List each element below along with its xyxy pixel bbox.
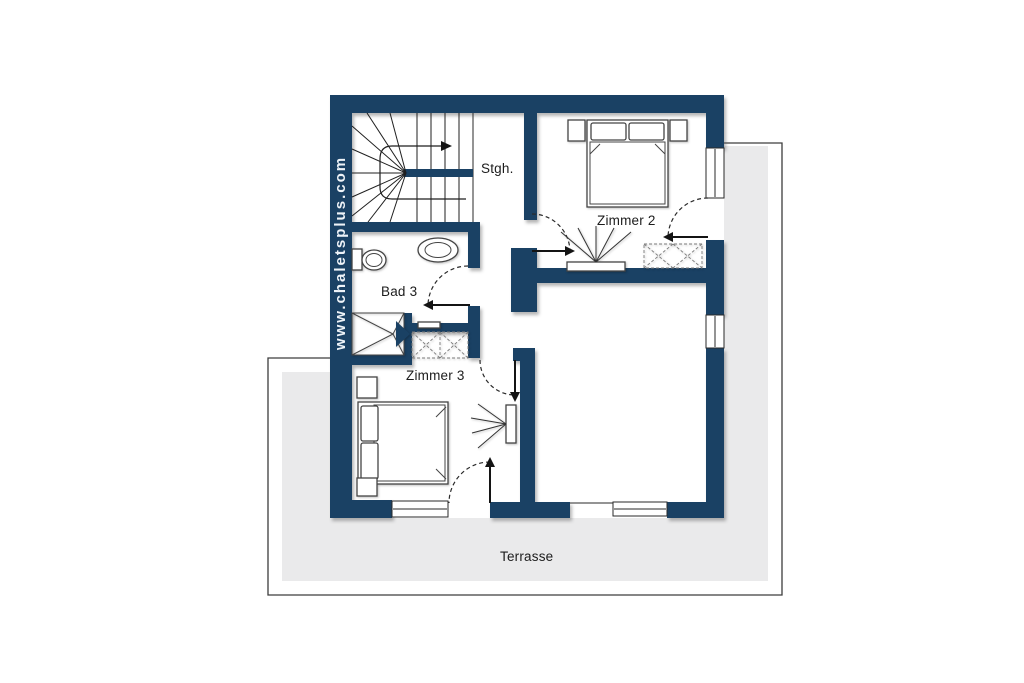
floorplan-drawing bbox=[0, 0, 1024, 683]
wall-hall-upper bbox=[524, 113, 537, 220]
bed-zimmer3-pillow-bottom bbox=[361, 443, 378, 479]
wall-right-lower bbox=[706, 348, 724, 518]
wall-right-middle bbox=[706, 240, 724, 315]
label-zimmer2: Zimmer 2 bbox=[597, 213, 656, 228]
wall-stairs-bottom bbox=[352, 222, 473, 232]
wall-hall-notch bbox=[513, 348, 535, 361]
wall-shower-south bbox=[352, 355, 404, 365]
wall-bottom-right bbox=[667, 502, 724, 518]
radiator-bad3 bbox=[418, 322, 440, 328]
label-bad3: Bad 3 bbox=[381, 284, 417, 299]
washbasin bbox=[418, 238, 458, 262]
bed-zimmer2 bbox=[587, 120, 668, 207]
label-staircase: Stgh. bbox=[481, 161, 514, 176]
wall-bad3-east-lower bbox=[468, 306, 480, 358]
watermark-text: www.chaletsplus.com bbox=[332, 148, 350, 358]
wall-livingroom-west bbox=[520, 348, 535, 503]
bed-zimmer2-pillow-right bbox=[629, 123, 664, 140]
bed-zimmer3-pillow-top bbox=[361, 406, 378, 441]
label-zimmer3: Zimmer 3 bbox=[406, 368, 465, 383]
wall-top bbox=[330, 95, 724, 113]
nightstand-zimmer2-left bbox=[568, 120, 585, 141]
nightstand-zimmer2-right bbox=[670, 120, 687, 141]
wall-bad3-east-upper bbox=[468, 222, 480, 268]
bed-zimmer3 bbox=[358, 402, 448, 484]
floorplan-page: Stgh. Zimmer 2 Bad 3 Zimmer 3 Terrasse w… bbox=[0, 0, 1024, 683]
stair-divider bbox=[404, 169, 473, 177]
bed-zimmer2-pillow-left bbox=[591, 123, 626, 140]
label-terrace: Terrasse bbox=[500, 549, 553, 564]
nightstand-zimmer3-top bbox=[357, 377, 377, 398]
wall-bottom-left bbox=[330, 500, 392, 518]
toilet bbox=[352, 249, 386, 270]
nightstand-zimmer3-bottom bbox=[357, 478, 377, 496]
wall-shower-east bbox=[404, 313, 412, 365]
wall-bottom-center bbox=[490, 502, 570, 518]
wall-right-upper bbox=[706, 113, 724, 148]
